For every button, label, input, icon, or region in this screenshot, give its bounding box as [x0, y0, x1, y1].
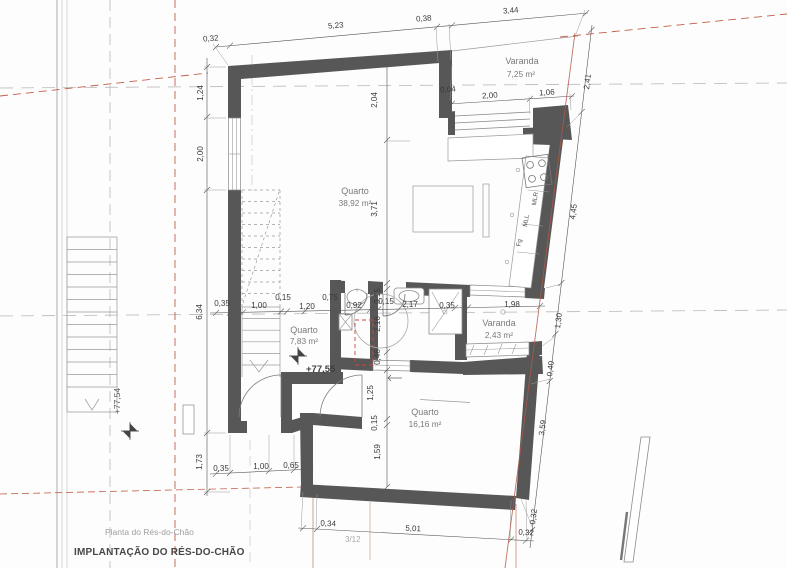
sideboard	[483, 184, 489, 237]
dim-label: 0,46	[373, 349, 382, 365]
room-name: Varanda	[505, 56, 538, 66]
entrance-door-leaf	[183, 405, 194, 434]
dim-label: 1,59	[373, 444, 382, 460]
dim-label: 1,24	[196, 85, 205, 101]
room-name: Quarto	[411, 407, 439, 417]
stair-direction-arrow	[85, 399, 99, 410]
external-stair	[67, 237, 117, 412]
dim-label: 3,44	[503, 5, 520, 15]
dim-label: 1,30	[553, 312, 564, 329]
dim-label: 2,00	[482, 90, 499, 100]
varanda-edge-line	[452, 36, 578, 51]
top-varanda-window	[455, 112, 530, 130]
dim-label: 0,15	[373, 288, 382, 304]
construction-lines	[0, 0, 787, 568]
left-window	[229, 118, 241, 190]
dim-label: 0,38	[416, 13, 433, 23]
room-area: 38,92 m²	[339, 198, 372, 208]
level-labels: +77,55 +77,54	[112, 364, 336, 414]
drawing-title: IMPLANTAÇÃO DO RÉS-DO-CHÃO	[74, 545, 245, 558]
knob-icon	[505, 260, 509, 264]
title-block: Planta do Rés-do-Chão IMPLANTAÇÃO DO RÉS…	[74, 527, 361, 558]
table	[413, 186, 473, 232]
dim-label: 2,00	[196, 146, 205, 162]
room-name: Quarto	[341, 186, 369, 196]
dim-label: 5,23	[328, 20, 345, 30]
dim-label: 0,35	[214, 299, 230, 308]
dim-label: 0,32	[518, 528, 535, 538]
stair-direction-arrow	[250, 360, 268, 372]
dim-label: 0,34	[320, 519, 337, 529]
room-area: 7,83 m²	[290, 336, 318, 346]
knob-icon	[516, 168, 520, 172]
dim-label: 2,04	[370, 92, 379, 108]
dim-label: 4,45	[568, 203, 579, 220]
kitchen-counter-top	[448, 134, 533, 161]
dim-label: 0,40	[545, 360, 556, 377]
dim-label: 1,25	[366, 385, 375, 401]
dim-label: 0,35	[213, 464, 229, 473]
dim-label: 1,00	[253, 462, 269, 471]
dim-label: 0,15	[370, 415, 379, 431]
dim-label: 0,92	[346, 301, 362, 310]
level-marker-icon	[121, 422, 139, 440]
dim-label: 2,41	[582, 73, 593, 90]
internal-stair	[242, 190, 280, 377]
room-name: Varanda	[482, 318, 515, 328]
dim-label: 0,32	[203, 33, 220, 43]
floor-step-line	[420, 400, 470, 403]
drawing-subtitle: Planta do Rés-do-Chão	[105, 527, 194, 537]
dim-label: 0,75	[322, 293, 338, 302]
dim-label: 1,00	[251, 301, 267, 310]
d im-label: 0,35	[439, 301, 455, 310]
benchmark-symbols	[121, 347, 307, 440]
level-label-interior: +77,55	[306, 364, 336, 375]
room-area: 2,43 m²	[485, 330, 513, 340]
knob-icon	[510, 213, 514, 217]
shower	[429, 289, 462, 334]
level-marker-icon	[289, 347, 307, 365]
dim-label: 0,15	[275, 293, 291, 302]
internal-stair-upper	[242, 190, 280, 305]
dim-label: 3,59	[537, 419, 548, 436]
level-label-exterior: +77,54	[112, 388, 122, 415]
sheet-ref: 3/12	[345, 535, 361, 544]
side-varanda-window	[466, 342, 529, 357]
dim-label: 6,34	[195, 304, 204, 320]
dim-label: 5,01	[405, 524, 422, 534]
dim-label: 1,98	[504, 300, 520, 309]
floor-plan-canvas: MLR MLL Fg	[0, 0, 787, 568]
room-name: Quarto	[290, 325, 318, 335]
dim-label: 2,16	[373, 316, 382, 332]
room-area: 16,16 m²	[409, 419, 442, 429]
dim-label: 1,06	[539, 87, 556, 97]
dim-label: 0,32	[528, 508, 539, 525]
dim-label: 0,04	[440, 84, 457, 94]
floor-plan-page: MLR MLL Fg	[0, 0, 787, 568]
internal-stair-lower	[242, 305, 280, 377]
dim-label: 2,17	[402, 300, 418, 309]
door-entrance-hall	[239, 375, 281, 417]
slide-direction-arrow	[388, 375, 402, 381]
dim-label: 0,65	[283, 461, 299, 470]
dim-label: 1,20	[299, 302, 315, 311]
room-area: 7,25 m²	[507, 69, 535, 79]
dim-label: 1,73	[195, 454, 204, 470]
boundary-wall-outline	[621, 437, 650, 562]
